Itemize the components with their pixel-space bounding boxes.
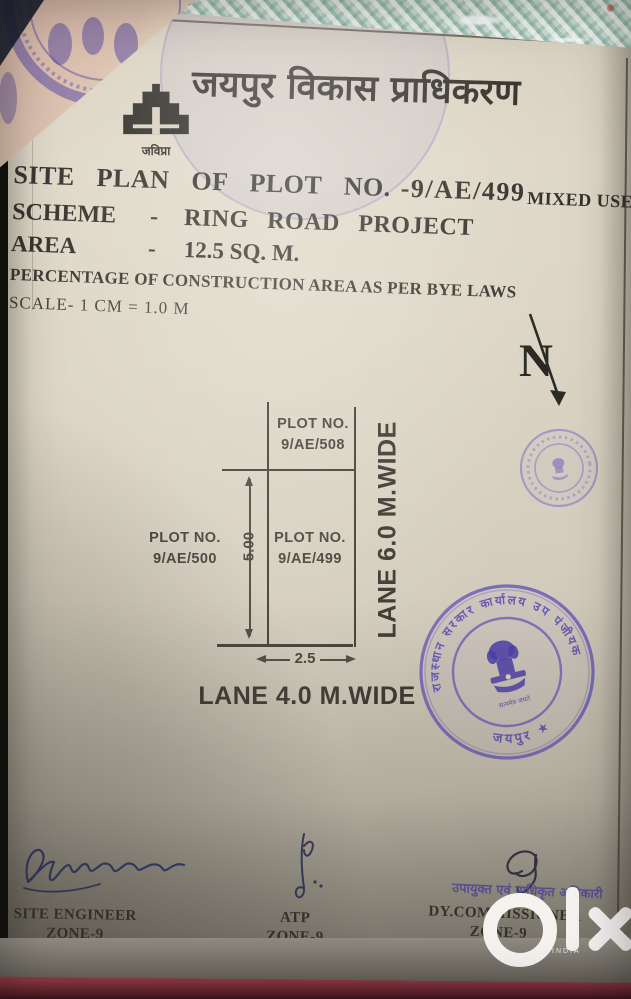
dimension-arrow-down: [245, 629, 253, 639]
dimension-arrow-right: [346, 655, 356, 663]
olx-x-icon: [584, 901, 631, 957]
area-value: 12.5 SQ. M.: [183, 237, 299, 267]
plot-bottom-line: [217, 644, 353, 647]
authority-name-hindi: जयपुर विकास प्राधिकरण: [191, 58, 512, 116]
dimension-arrow-left: [256, 655, 266, 663]
plot-label-508: PLOT NO. 9/AE/508: [268, 414, 358, 456]
photographed-site-plan-document: जविप्रा जयपुर विकास प्राधिकरण SITE PLAN …: [0, 0, 631, 999]
site-plan-page: जविप्रा जयपुर विकास प्राधिकरण SITE PLAN …: [0, 0, 631, 999]
large-round-government-stamp: राजस्थान सरकार कार्यालय उप पंजीयक जयपुर …: [391, 554, 623, 790]
site-engineer-signature: [18, 840, 228, 900]
jda-logo-caption: जविप्रा: [116, 142, 196, 159]
olx-o-icon: [483, 893, 557, 967]
horizontal-dimension-line-left: [263, 659, 290, 661]
lane-bottom-label: LANE 4.0 M.WIDE: [195, 682, 419, 711]
dimension-arrow-up: [245, 476, 253, 486]
area-dash: -: [148, 236, 157, 262]
north-arrow-icon: [516, 310, 576, 414]
plot-label-500: PLOT NO. 9/AE/500: [140, 528, 230, 570]
area-label: AREA: [11, 231, 77, 259]
atp-signature: [278, 830, 328, 908]
scheme-value: RING ROAD PROJECT: [184, 205, 475, 242]
plot-label-499: PLOT NO. 9/AE/499: [264, 528, 356, 570]
jda-logo-icon: [116, 82, 196, 136]
plot-number: -9/AE/499: [400, 174, 526, 208]
olx-india-label: INDIA: [552, 948, 581, 955]
plot-divider-line: [222, 469, 356, 471]
plot-use-suffix: MIXED USE): [527, 188, 631, 213]
title-block: SITE PLAN OF PLOT NO. -9/AE/499 MIXED US…: [9, 160, 628, 334]
olx-l-icon: [566, 887, 579, 951]
dimension-2-5m: 2.5: [290, 650, 320, 667]
small-round-office-stamp: [513, 421, 606, 516]
scheme-dash: -: [150, 204, 159, 231]
dimension-5m: 5.00: [241, 524, 258, 570]
horizontal-dimension-line-right: [320, 659, 347, 661]
scheme-label: SCHEME: [12, 199, 117, 230]
jda-logo: जविप्रा: [116, 82, 196, 159]
